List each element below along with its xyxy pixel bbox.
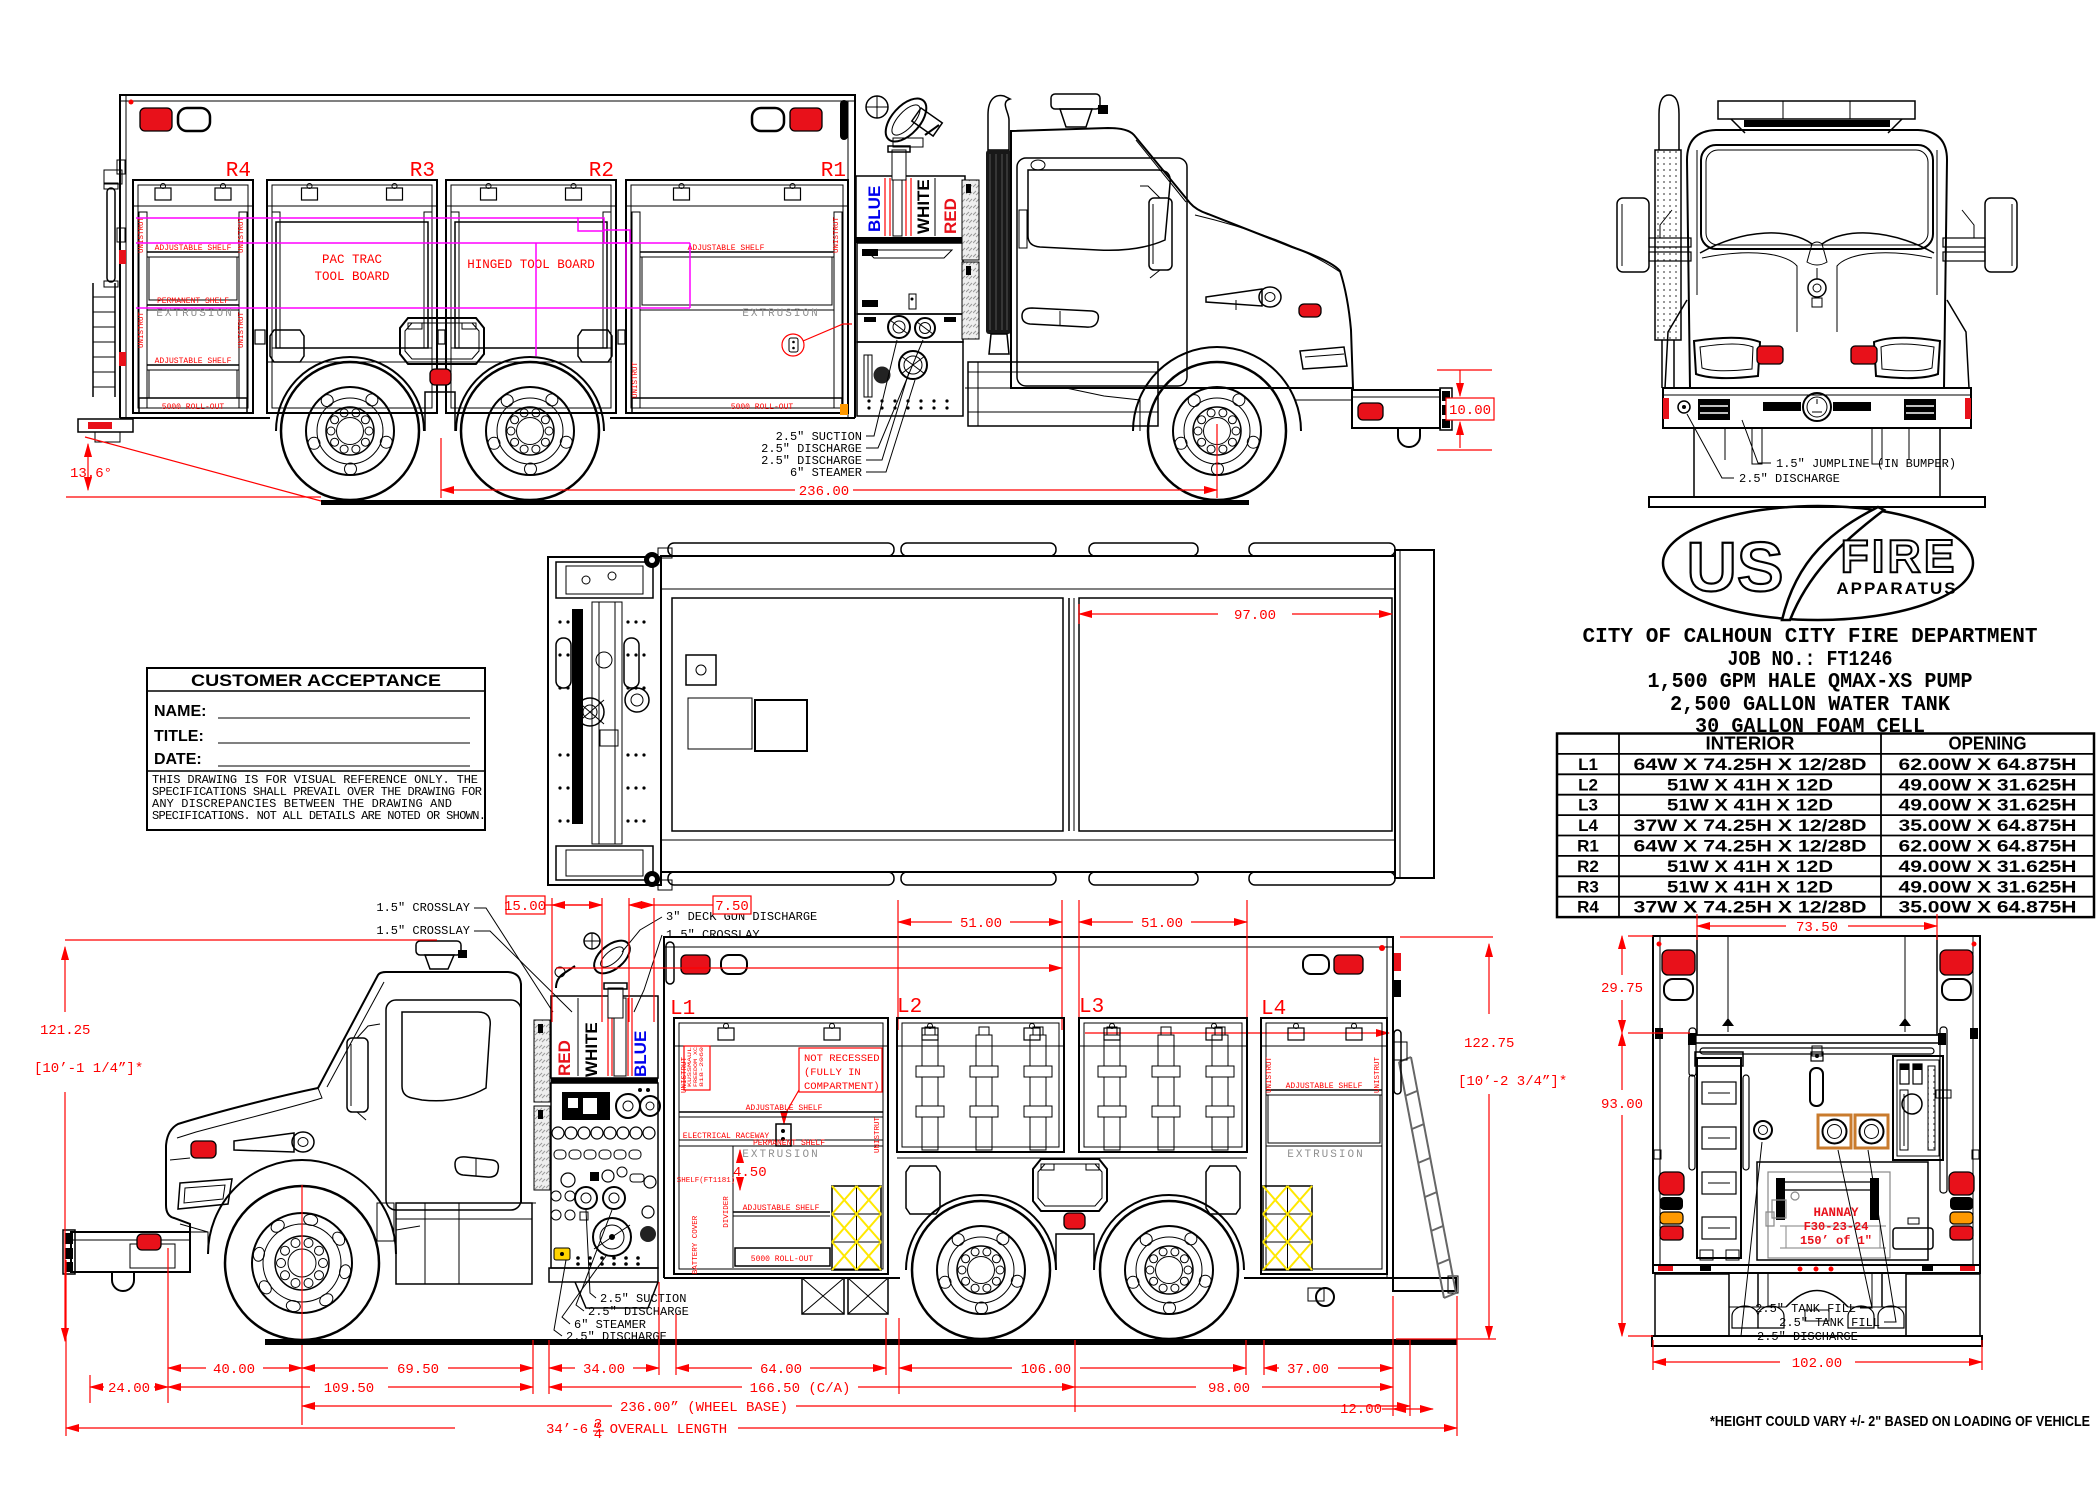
svg-text:62.00W X 64.875H: 62.00W X 64.875H [1899, 755, 2077, 774]
svg-text:CUSTOMER ACCEPTANCE: CUSTOMER ACCEPTANCE [191, 671, 441, 690]
svg-text:R4: R4 [226, 160, 251, 183]
svg-text:L3: L3 [1079, 996, 1104, 1019]
svg-text:121.25: 121.25 [40, 1023, 90, 1039]
svg-text:13.6°: 13.6° [70, 466, 112, 482]
svg-text:UNISTRUT: UNISTRUT [833, 217, 841, 254]
svg-text:62.00W X 64.875H: 62.00W X 64.875H [1899, 837, 2077, 856]
svg-text:*HEIGHT COULD VARY +/- 2" BASE: *HEIGHT COULD VARY +/- 2" BASED ON LOADI… [1710, 1413, 2090, 1430]
svg-text:R1: R1 [821, 160, 846, 183]
svg-text:49.00W X 31.625H: 49.00W X 31.625H [1899, 796, 2077, 815]
svg-text:TITLE:: TITLE: [154, 728, 204, 745]
svg-text:5000 ROLL-OUT: 5000 ROLL-OUT [751, 1255, 814, 1264]
svg-text:166.50 (C/A): 166.50 (C/A) [750, 1381, 851, 1397]
svg-text:1.5" CROSSLAY: 1.5" CROSSLAY [376, 901, 470, 915]
svg-text:7.50: 7.50 [715, 899, 749, 915]
svg-text:1.5" CROSSLAY: 1.5" CROSSLAY [376, 924, 470, 938]
svg-text:37W X 74.25H X 12/28D: 37W X 74.25H X 12/28D [1634, 898, 1867, 917]
svg-text:JOB NO.: FT1246: JOB NO.: FT1246 [1728, 648, 1893, 672]
svg-text:2.5" TANK FILL: 2.5" TANK FILL [1779, 1316, 1880, 1330]
svg-text:L2: L2 [897, 996, 922, 1019]
svg-text:1,500 GPM HALE QMAX-XS PUMP: 1,500 GPM HALE QMAX-XS PUMP [1648, 670, 1973, 694]
svg-text:37.00: 37.00 [1287, 1362, 1329, 1378]
svg-text:SHELF(FT1181): SHELF(FT1181) [677, 1177, 736, 1185]
svg-text:64W X 74.25H X 12/28D: 64W X 74.25H X 12/28D [1634, 755, 1867, 774]
svg-text:WHITE: WHITE [582, 1022, 601, 1077]
svg-text:CITY OF CALHOUN CITY FIRE DEPA: CITY OF CALHOUN CITY FIRE DEPARTMENT [1583, 625, 2038, 649]
svg-text:DIVIDER: DIVIDER [723, 1196, 731, 1228]
svg-text:69.50: 69.50 [397, 1362, 439, 1378]
svg-text:93.00: 93.00 [1601, 1097, 1643, 1113]
svg-text:ADJUSTABLE SHELF: ADJUSTABLE SHELF [155, 244, 232, 253]
svg-text:ADJUSTABLE SHELF: ADJUSTABLE SHELF [688, 244, 765, 253]
svg-text:UNISTRUT: UNISTRUT [1374, 1057, 1382, 1094]
svg-text:[10’-2 3/4”]*: [10’-2 3/4”]* [1458, 1074, 1567, 1090]
svg-text:ADJUSTABLE SHELF: ADJUSTABLE SHELF [746, 1104, 823, 1113]
svg-text:APPARATUS: APPARATUS [1836, 579, 1957, 598]
svg-text:R1: R1 [1577, 837, 1599, 856]
svg-text:(FULLY IN: (FULLY IN [804, 1067, 861, 1079]
svg-text:L3: L3 [1578, 796, 1598, 815]
svg-text:US: US [1686, 528, 1783, 606]
svg-text:L4: L4 [1578, 816, 1598, 835]
svg-text:COMPARTMENT): COMPARTMENT) [804, 1081, 880, 1093]
svg-text:34.00: 34.00 [583, 1362, 625, 1378]
svg-text:HINGED TOOL BOARD: HINGED TOOL BOARD [467, 258, 595, 272]
svg-text:34’-6: 34’-6 [546, 1422, 588, 1438]
svg-text:2.5" DISCHARGE: 2.5" DISCHARGE [566, 1330, 667, 1344]
svg-text:2.5" DISCHARGE: 2.5" DISCHARGE [1757, 1330, 1858, 1344]
svg-text:UNISTRUT: UNISTRUT [632, 362, 640, 399]
svg-text:2.5" SUCTION: 2.5" SUCTION [600, 1292, 686, 1306]
svg-text:NAME:: NAME: [154, 703, 206, 720]
svg-text:10.00: 10.00 [1449, 403, 1491, 419]
svg-text:64.00: 64.00 [760, 1362, 802, 1378]
svg-text:5000 ROLL-OUT: 5000 ROLL-OUT [731, 403, 794, 412]
svg-text:FIRE: FIRE [1841, 530, 1958, 582]
svg-text:818-2060: 818-2060 [698, 1047, 705, 1087]
svg-text:OPENING: OPENING [1949, 734, 2027, 754]
svg-text:R3: R3 [410, 160, 435, 183]
svg-text:” OVERALL LENGTH: ” OVERALL LENGTH [593, 1422, 727, 1438]
svg-text:PERMANENT SHELF: PERMANENT SHELF [157, 297, 229, 306]
svg-text:12.00: 12.00 [1340, 1402, 1382, 1418]
svg-text:49.00W X 31.625H: 49.00W X 31.625H [1899, 775, 2077, 794]
svg-text:PERMANENT SHELF: PERMANENT SHELF [753, 1139, 825, 1148]
svg-text:UNISTRUT: UNISTRUT [681, 1057, 689, 1094]
svg-text:122.75: 122.75 [1464, 1036, 1514, 1052]
svg-text:BATTERY COVER: BATTERY COVER [692, 1215, 700, 1274]
svg-text:EXTRUSION: EXTRUSION [156, 308, 233, 320]
svg-text:51W X 41H X 12D: 51W X 41H X 12D [1667, 796, 1833, 815]
svg-text:DATE:: DATE: [154, 751, 202, 768]
svg-text:1.5" CROSSLAY: 1.5" CROSSLAY [666, 928, 760, 942]
svg-text:R2: R2 [589, 160, 614, 183]
svg-text:40.00: 40.00 [213, 1362, 255, 1378]
svg-text:WHITE: WHITE [914, 179, 933, 234]
svg-text:UNISTRUT: UNISTRUT [238, 312, 246, 349]
svg-text:R3: R3 [1577, 877, 1599, 896]
svg-text:EXTRUSION: EXTRUSION [1287, 1149, 1364, 1161]
svg-text:RED: RED [555, 1040, 574, 1076]
svg-text:4.50: 4.50 [733, 1165, 767, 1181]
svg-text:ADJUSTABLE SHELF: ADJUSTABLE SHELF [155, 357, 232, 366]
svg-text:64W X 74.25H X 12/28D: 64W X 74.25H X 12/28D [1634, 837, 1867, 856]
svg-text:EXTRUSION: EXTRUSION [742, 1149, 819, 1161]
svg-text:F30-23-24: F30-23-24 [1804, 1220, 1869, 1234]
svg-text:2.5" DISCHARGE: 2.5" DISCHARGE [588, 1305, 689, 1319]
svg-text:15.00: 15.00 [504, 899, 546, 915]
svg-text:109.50: 109.50 [324, 1381, 374, 1397]
svg-text:51.00: 51.00 [960, 916, 1002, 932]
svg-text:UNISTRUT: UNISTRUT [138, 312, 146, 349]
svg-text:51W X 41H X 12D: 51W X 41H X 12D [1667, 775, 1833, 794]
svg-text:NOT RECESSED: NOT RECESSED [804, 1053, 880, 1065]
svg-text:2.5" TANK FILL: 2.5" TANK FILL [1755, 1302, 1856, 1316]
svg-text:PAC TRAC: PAC TRAC [322, 253, 382, 267]
svg-text:106.00: 106.00 [1021, 1362, 1071, 1378]
svg-text:49.00W X 31.625H: 49.00W X 31.625H [1899, 857, 2077, 876]
svg-text:2.5" DISCHARGE: 2.5" DISCHARGE [1739, 472, 1840, 486]
svg-text:102.00: 102.00 [1792, 1356, 1842, 1372]
svg-text:29.75: 29.75 [1601, 981, 1643, 997]
svg-text:SPECIFICATIONS. NOT ALL DETAIL: SPECIFICATIONS. NOT ALL DETAILS ARE NOTE… [152, 809, 486, 823]
svg-text:[10’-1 1/4”]*: [10’-1 1/4”]* [34, 1061, 143, 1077]
svg-text:UNISTRUT: UNISTRUT [138, 217, 146, 254]
svg-text:1.5" JUMPLINE (IN BUMPER): 1.5" JUMPLINE (IN BUMPER) [1776, 457, 1956, 471]
svg-text:L2: L2 [1578, 775, 1598, 794]
svg-text:ADJUSTABLE SHELF: ADJUSTABLE SHELF [1286, 1082, 1363, 1091]
svg-text:6" STEAMER: 6" STEAMER [790, 466, 862, 480]
svg-text:UNISTRUT: UNISTRUT [238, 217, 246, 254]
svg-text:51W X 41H X 12D: 51W X 41H X 12D [1667, 857, 1833, 876]
svg-text:35.00W X 64.875H: 35.00W X 64.875H [1899, 816, 2077, 835]
svg-text:51W X 41H X 12D: 51W X 41H X 12D [1667, 877, 1833, 896]
svg-text:2,500 GALLON WATER TANK: 2,500 GALLON WATER TANK [1670, 693, 1950, 717]
svg-text:35.00W X 64.875H: 35.00W X 64.875H [1899, 898, 2077, 917]
svg-text:97.00: 97.00 [1234, 608, 1276, 624]
svg-text:BLUE: BLUE [631, 1031, 650, 1077]
svg-text:UNISTRUT: UNISTRUT [874, 1117, 882, 1154]
svg-text:RED: RED [941, 198, 960, 234]
svg-text:150’ of 1": 150’ of 1" [1800, 1234, 1872, 1248]
svg-text:98.00: 98.00 [1208, 1381, 1250, 1397]
svg-text:236.00” (WHEEL BASE): 236.00” (WHEEL BASE) [620, 1400, 788, 1416]
svg-text:EXTRUSION: EXTRUSION [742, 308, 819, 320]
svg-text:BLUE: BLUE [865, 186, 884, 232]
svg-text:L1: L1 [1578, 755, 1598, 774]
svg-text:TOOL BOARD: TOOL BOARD [314, 270, 389, 284]
svg-text:INTERIOR: INTERIOR [1706, 734, 1795, 754]
svg-text:37W X 74.25H X 12/28D: 37W X 74.25H X 12/28D [1634, 816, 1867, 835]
svg-text:49.00W X 31.625H: 49.00W X 31.625H [1899, 877, 2077, 896]
svg-text:51.00: 51.00 [1141, 916, 1183, 932]
svg-text:ADJUSTABLE SHELF: ADJUSTABLE SHELF [743, 1204, 820, 1213]
svg-text:R2: R2 [1577, 857, 1599, 876]
svg-text:R4: R4 [1577, 898, 1599, 917]
svg-text:5000 ROLL-OUT: 5000 ROLL-OUT [162, 403, 225, 412]
svg-text:236.00: 236.00 [799, 484, 849, 500]
svg-text:73.50: 73.50 [1796, 920, 1838, 936]
svg-text:24.00: 24.00 [108, 1381, 150, 1397]
svg-text:UNISTRUT: UNISTRUT [1266, 1057, 1274, 1094]
